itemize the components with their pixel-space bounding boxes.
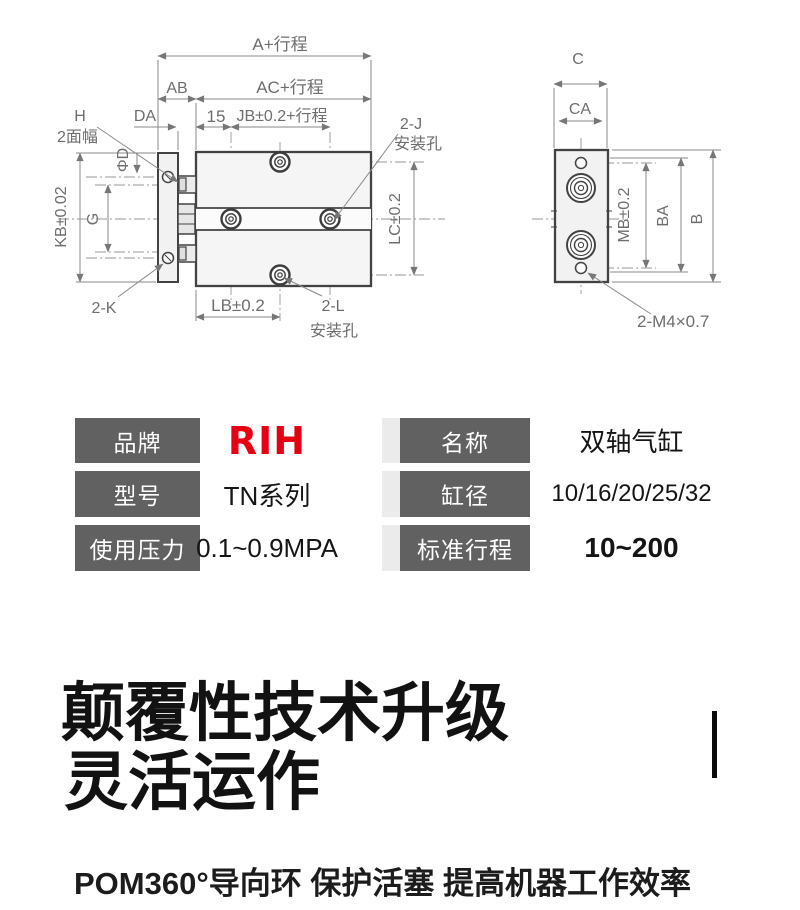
promo-subline: POM360°导向环 保护活塞 提高机器工作效率 (74, 858, 691, 903)
spec-label-model: 型号 (75, 471, 200, 517)
spec-label-name: 名称 (400, 418, 530, 463)
promo-headline-line1: 颠覆性技术升级 (61, 681, 509, 747)
spec-table: 品牌 RIH 名称 双轴气缸 型号 TN系列 缸径 10/16/20/25/32… (0, 0, 800, 600)
decorative-bar (712, 711, 717, 778)
spec-label-bore: 缸径 (400, 471, 530, 517)
table-divider (382, 418, 400, 463)
product-detail-page: A+行程 AB AC+行程 DA 15 JB±0.2+行程 H 2面幅 ΦD K… (0, 0, 800, 910)
table-divider (382, 471, 400, 517)
spec-value-stroke: 10~200 (530, 525, 733, 571)
spec-value-bore: 10/16/20/25/32 (530, 471, 733, 517)
spec-value-model: TN系列 (200, 471, 382, 517)
spec-label-pressure: 使用压力 (75, 525, 200, 571)
table-divider (382, 525, 400, 571)
spec-value-pressure: 0.1~0.9MPA (200, 525, 382, 571)
promo-headline-line2: 灵活运作 (64, 750, 320, 816)
spec-value-brand: RIH (200, 418, 382, 463)
spec-label-brand: 品牌 (75, 418, 200, 463)
spec-value-name: 双轴气缸 (530, 418, 733, 463)
spec-label-stroke: 标准行程 (400, 525, 530, 571)
